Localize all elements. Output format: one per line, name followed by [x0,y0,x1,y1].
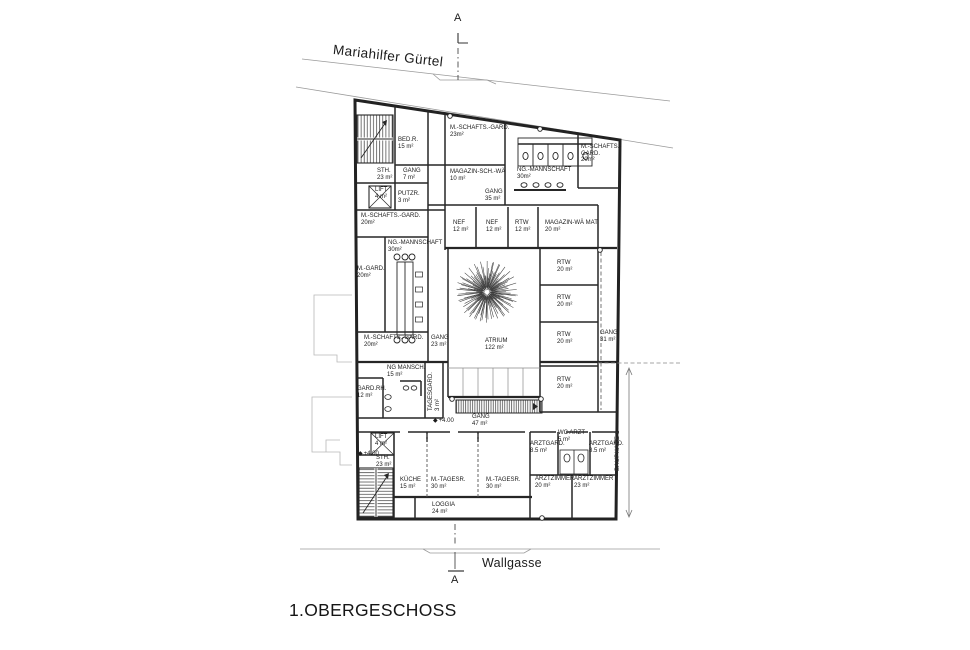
room-label: ATRIUM122 m² [485,338,508,351]
room-label: GARD.RH.12 m² [357,386,386,399]
staircase-bottom-left [359,468,393,517]
room-label: M.-GARD.20m² [357,266,385,279]
section-marker-bottom: A [451,574,458,586]
room-label: WC ARZT5 m² [558,430,585,443]
room-label: RTW12 m² [515,220,530,233]
level-marker-diamond-icon: ◆ [358,451,363,457]
bauphase-arrow [626,368,632,517]
room-label: M.-SCHAFTS.-GARD.20m² [361,213,420,226]
level-marker: ◆+4.00 [433,417,454,424]
room-label: MAGAZIN-WÄ MAT20 m² [545,220,598,233]
room-label: M.-TAGESR.30 m² [486,477,521,490]
atrium-stair [456,400,542,413]
room-label: NEF12 m² [453,220,468,233]
room-label: RTW20 m² [557,295,572,308]
neighbor-outlines [312,295,352,465]
room-label: MAGAZIN-SCH.-WÄ10 m² [450,169,505,182]
room-label: GANG35 m² [485,189,503,202]
room-label: RTW20 m² [557,377,572,390]
plan-linework [0,0,970,650]
room-label: RTW20 m² [557,260,572,273]
room-label: M.-SCHAFTS.-GARD.20m² [364,335,423,348]
room-label: GANG31 m² [600,330,618,343]
level-marker: ◆+4.00 [358,450,379,457]
room-label: TAGESGARD.3 m² [428,372,441,411]
section-marker-top: A [454,12,461,24]
level-marker-diamond-icon: ◆ [433,418,438,424]
room-label: NG.-MANNSCHAFT30m² [517,167,571,180]
room-label: ARZTZIMMER23 m² [574,476,613,489]
room-label: KÜCHE15 m² [400,477,421,490]
room-label: M.-SCHAFTS.-GARD.20m² [581,144,621,164]
room-label: PUTZR.3 m² [398,191,420,204]
room-label: ARZTZIMMER20 m² [535,476,574,489]
street-label-wallgasse: Wallgasse [482,556,542,570]
floor-plan-canvas: BED.R.15 m²M.-SCHAFTS.-GARD.23m²STH.23 m… [0,0,970,650]
room-label: BED.R.15 m² [398,137,418,150]
room-label: NG.-MANNSCHAFT30m² [388,240,442,253]
staircase-top-left [357,115,393,163]
room-label: LOGGIA24 m² [432,502,455,515]
room-label: STH.23 m² [376,455,391,468]
room-label: LIFT4 m² [375,434,387,447]
room-label: NEF12 m² [486,220,501,233]
bauphase-annotation: BAUPHASE 1 [615,430,621,471]
room-label: M.-SCHAFTS.-GARD.23m² [450,125,509,138]
room-label: RTW20 m² [557,332,572,345]
room-label: M.-TAGESR.30 m² [431,477,466,490]
room-label: GANG7 m² [403,168,421,181]
room-label: STH.23 m² [377,168,392,181]
room-label: NG MANSCH.15 m² [387,365,425,378]
page-title: 1.OBERGESCHOSS [289,600,457,621]
room-label: LIFT4 m² [375,187,387,200]
room-label: GANG47 m² [472,414,490,427]
room-label: GANG23 m² [431,335,449,348]
